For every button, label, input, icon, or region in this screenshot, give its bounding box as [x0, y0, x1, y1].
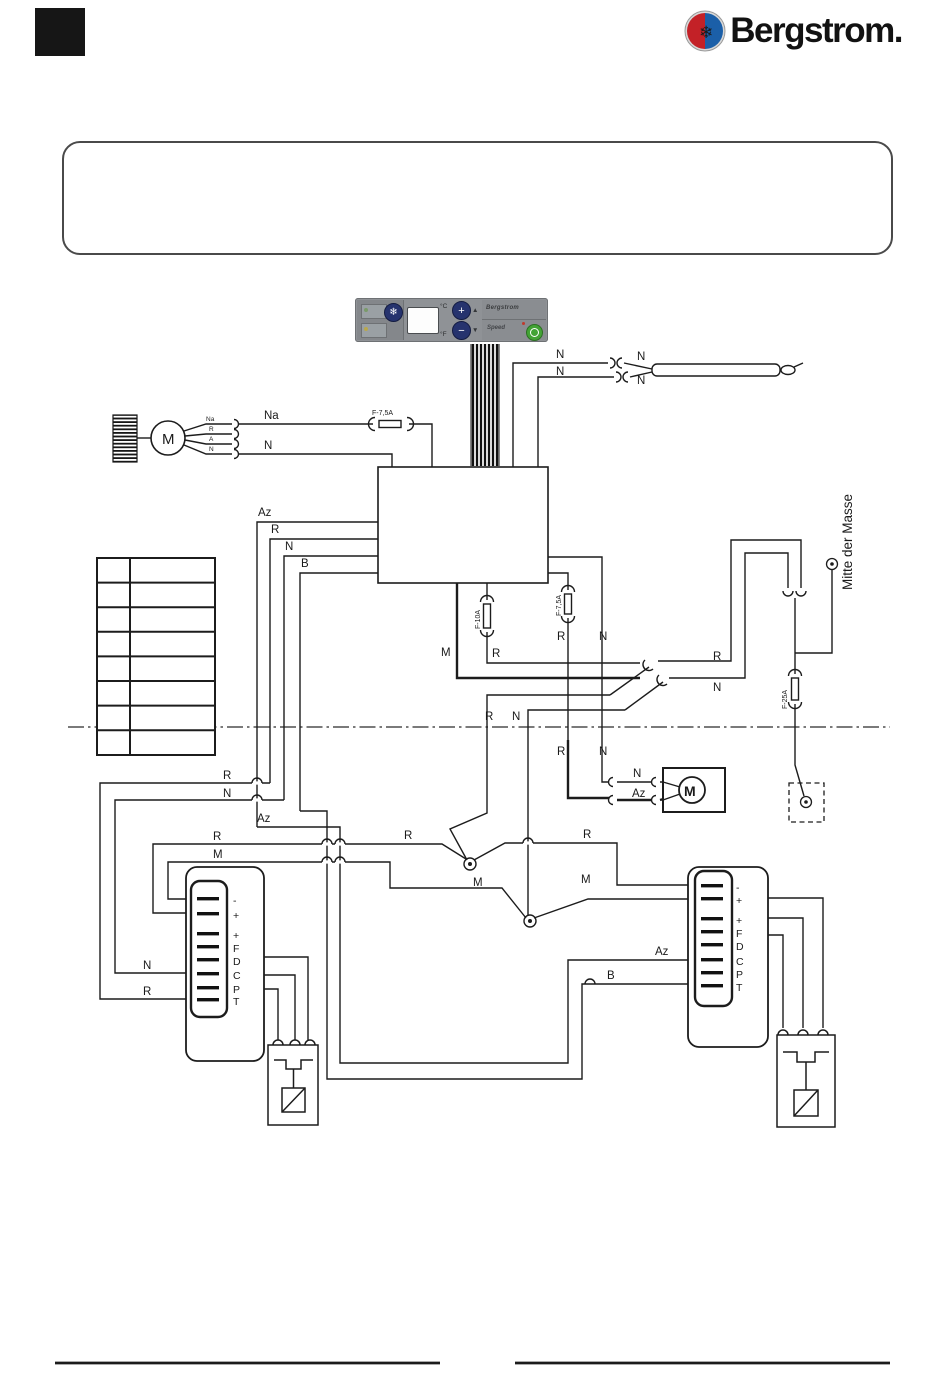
wire-label: R [213, 831, 221, 843]
pin-label: T [233, 996, 240, 1008]
wire-label: M [213, 849, 223, 861]
wire-label: Mitte der Masse [840, 494, 855, 590]
pin-bar [701, 917, 723, 920]
temp-probe [652, 363, 803, 376]
wire-label: N [264, 440, 272, 452]
pin-bar [197, 998, 219, 1001]
ribbon-cable [471, 344, 499, 466]
wire-label: N [633, 768, 641, 780]
wire-label: N [599, 746, 607, 758]
wire-label: M [441, 647, 451, 659]
wire-label: N [285, 541, 293, 553]
pin-bar [197, 972, 219, 975]
pin-bar [701, 884, 723, 887]
legend-table [97, 558, 215, 755]
wire-label: R [713, 651, 721, 663]
wire-hops [252, 778, 595, 984]
wire-label: M [473, 877, 483, 889]
pin-label: C [736, 956, 744, 968]
wire-label: R [209, 426, 214, 433]
pin-bar [701, 958, 723, 961]
wire-label: B [607, 970, 615, 982]
wire-label: F-7,5A [556, 595, 563, 616]
pin-label: P [233, 984, 240, 996]
wire-label: N [599, 631, 607, 643]
wire-label: M [162, 431, 175, 448]
wire-label: R [485, 711, 493, 723]
connector-pins: -++FDCPT-++FDCPT [197, 882, 744, 1008]
wire-label: R [143, 986, 151, 998]
wire-label: Az [258, 507, 272, 519]
pin-bar [701, 971, 723, 974]
left-relay-box [268, 1040, 318, 1125]
wire-label: R [492, 648, 500, 660]
wire-label: N [223, 788, 231, 800]
pin-bar [197, 932, 219, 935]
wire-label: R [583, 829, 591, 841]
pin-label: - [736, 882, 740, 894]
wire-label: Na [264, 410, 279, 422]
pin-label: + [736, 915, 742, 927]
wire-label: F-7,5A [372, 410, 393, 417]
wire-label: R [404, 830, 412, 842]
pin-bar [197, 945, 219, 948]
pin-bar [197, 986, 219, 989]
pin-label: C [233, 970, 241, 982]
wire-label: N [143, 960, 151, 972]
pin-bar [197, 958, 219, 961]
left-connector-block [186, 867, 264, 1061]
wire-label: F-25A [782, 690, 789, 709]
wire-label: R [223, 770, 231, 782]
wire-label: M [684, 783, 696, 799]
wire-label: Az [257, 813, 271, 825]
wire-label: M [581, 874, 591, 886]
wire-label: A [209, 436, 214, 443]
pin-label: + [736, 895, 742, 907]
pin-bar [701, 897, 723, 900]
pin-label: - [233, 895, 237, 907]
wire-label: Az [655, 946, 669, 958]
pin-label: T [736, 982, 743, 994]
pin-bar [701, 984, 723, 987]
pin-bar [197, 897, 219, 900]
pin-label: + [233, 910, 239, 922]
wire-label: R [557, 746, 565, 758]
pin-label: P [736, 969, 743, 981]
wire-label: N [556, 366, 564, 378]
wire-label: F-10A [475, 610, 482, 629]
wire-label: Na [206, 416, 215, 423]
wire-label: N [512, 711, 520, 723]
pin-label: + [233, 930, 239, 942]
wire-label: R [271, 524, 279, 536]
wiring-schematic: -++FDCPT-++FDCPT NNNNNaRANNaNF-7,5AAzRNB… [0, 0, 950, 1374]
wire-label: R [557, 631, 565, 643]
ground-terminals [464, 559, 838, 928]
wire-label: N [556, 349, 564, 361]
wire-label: N [637, 351, 645, 363]
pin-label: D [233, 956, 241, 968]
wire-label: N [209, 446, 214, 453]
pin-bar [701, 943, 723, 946]
right-relay-box [777, 1030, 835, 1127]
wire-label: B [301, 558, 309, 570]
pin-label: D [736, 941, 744, 953]
wire-label: Az [632, 788, 646, 800]
pin-label: F [736, 928, 742, 940]
wire-label: N [637, 375, 645, 387]
pin-bar [197, 912, 219, 915]
blower-icon [113, 415, 137, 462]
pin-bar [701, 930, 723, 933]
control-unit-box [378, 467, 548, 583]
wire-label: N [713, 682, 721, 694]
right-connector-block [688, 867, 768, 1047]
pin-label: F [233, 943, 239, 955]
